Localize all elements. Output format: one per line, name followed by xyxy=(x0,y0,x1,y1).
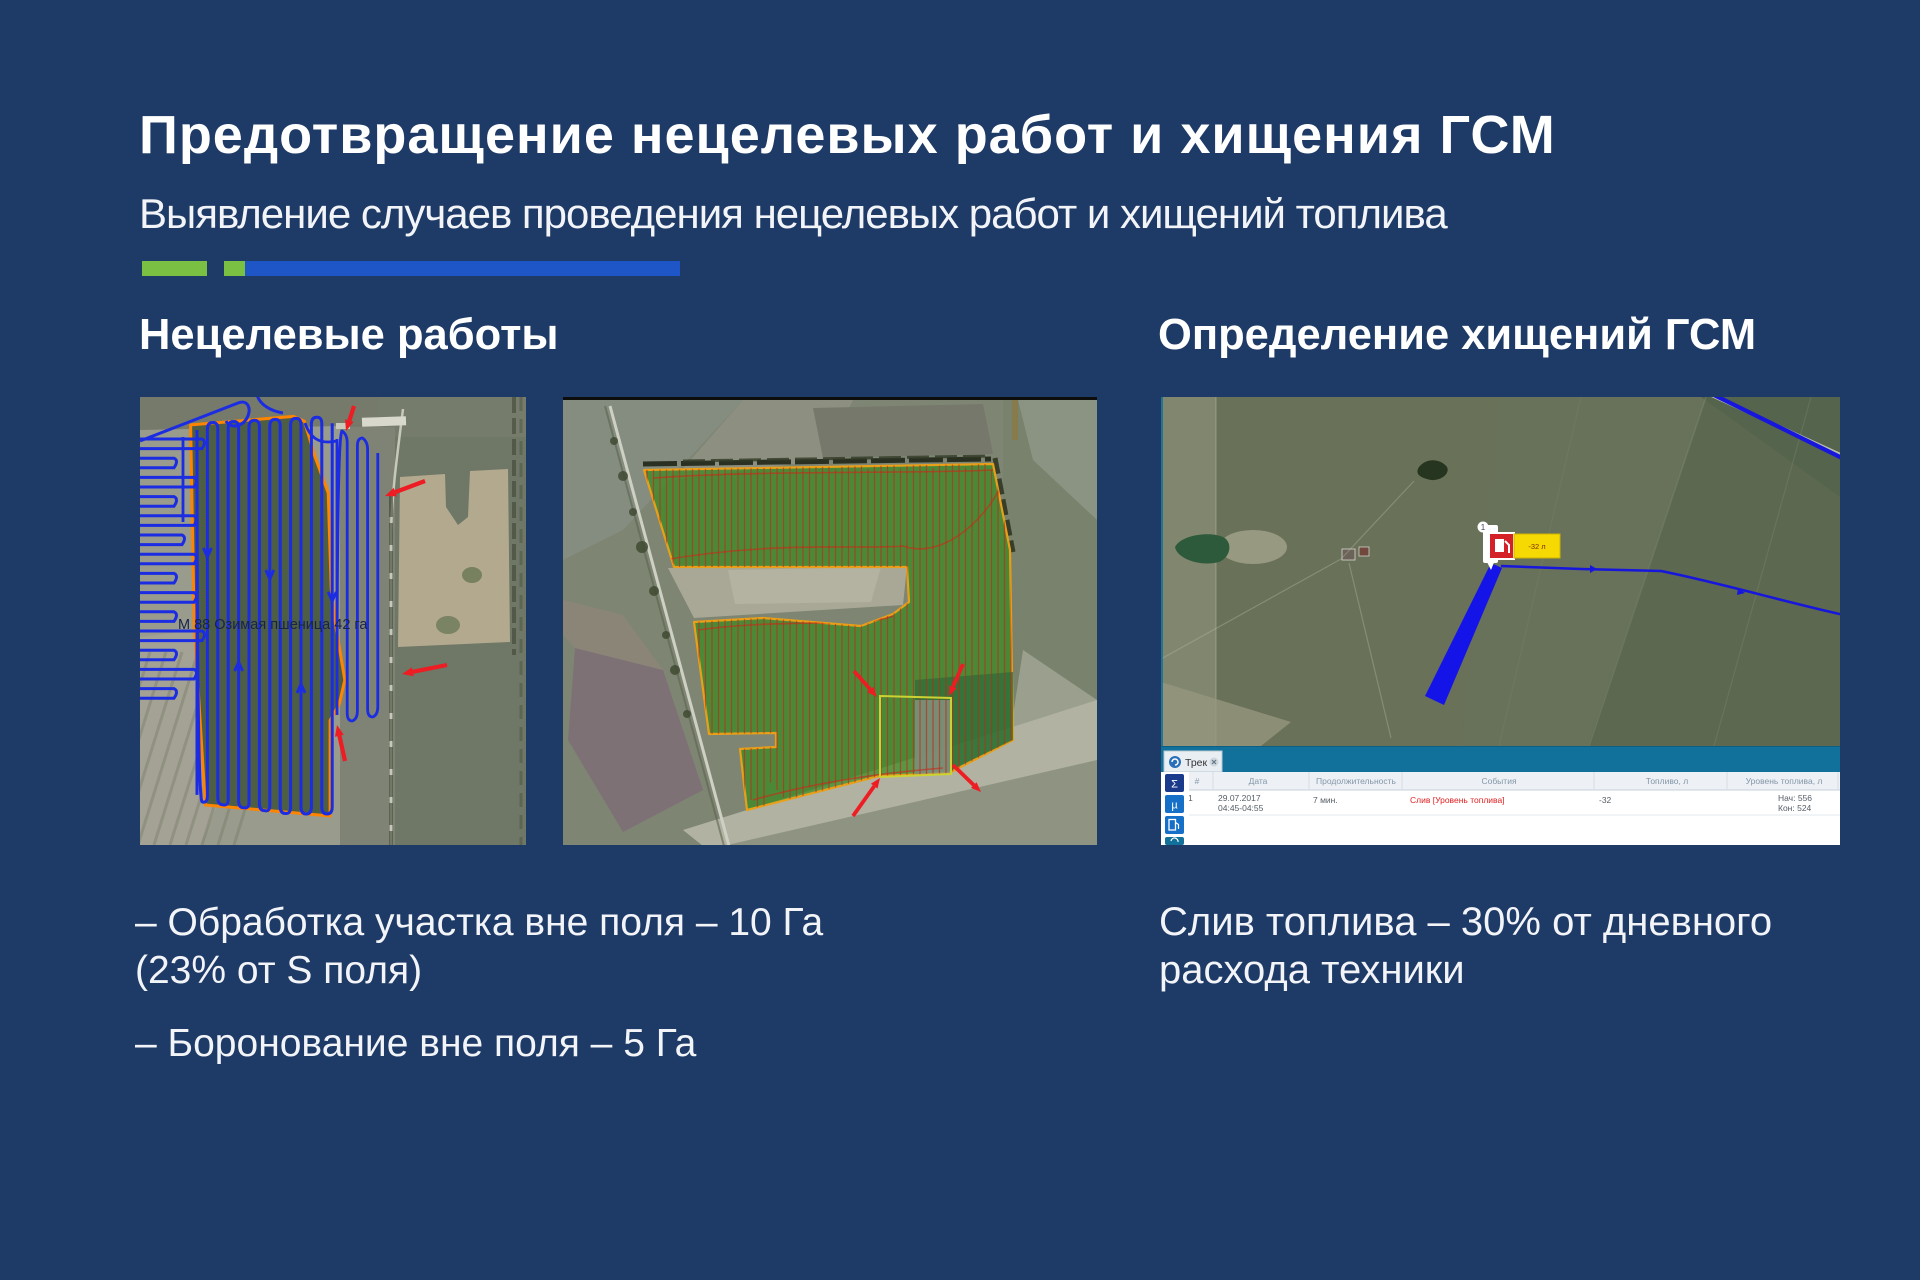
svg-text:М 88 Озимая пшеница 42 га: М 88 Озимая пшеница 42 га xyxy=(178,617,368,633)
svg-text:µ: µ xyxy=(1171,800,1178,812)
svg-text:Топливо, л: Топливо, л xyxy=(1646,776,1688,786)
svg-text:Слив [Уровень топлива]: Слив [Уровень топлива] xyxy=(1410,795,1505,805)
svg-text:Кон: 524: Кон: 524 xyxy=(1778,803,1812,813)
svg-text:Уровень топлива, л: Уровень топлива, л xyxy=(1746,776,1823,786)
svg-text:7 мин.: 7 мин. xyxy=(1313,795,1338,805)
svg-text:-32 л: -32 л xyxy=(1528,542,1545,551)
svg-text:Нач: 556: Нач: 556 xyxy=(1778,793,1812,803)
svg-text:Дата: Дата xyxy=(1249,776,1268,786)
svg-text:#: # xyxy=(1195,776,1200,786)
svg-text:Σ: Σ xyxy=(1171,779,1178,791)
svg-text:04:45-04:55: 04:45-04:55 xyxy=(1218,803,1264,813)
svg-text:29.07.2017: 29.07.2017 xyxy=(1218,793,1261,803)
svg-text:-32: -32 xyxy=(1599,795,1612,805)
svg-text:Продолжительность: Продолжительность xyxy=(1316,776,1396,786)
svg-text:События: События xyxy=(1481,776,1516,786)
svg-text:Трек: Трек xyxy=(1185,757,1208,769)
svg-text:1: 1 xyxy=(1481,523,1486,532)
